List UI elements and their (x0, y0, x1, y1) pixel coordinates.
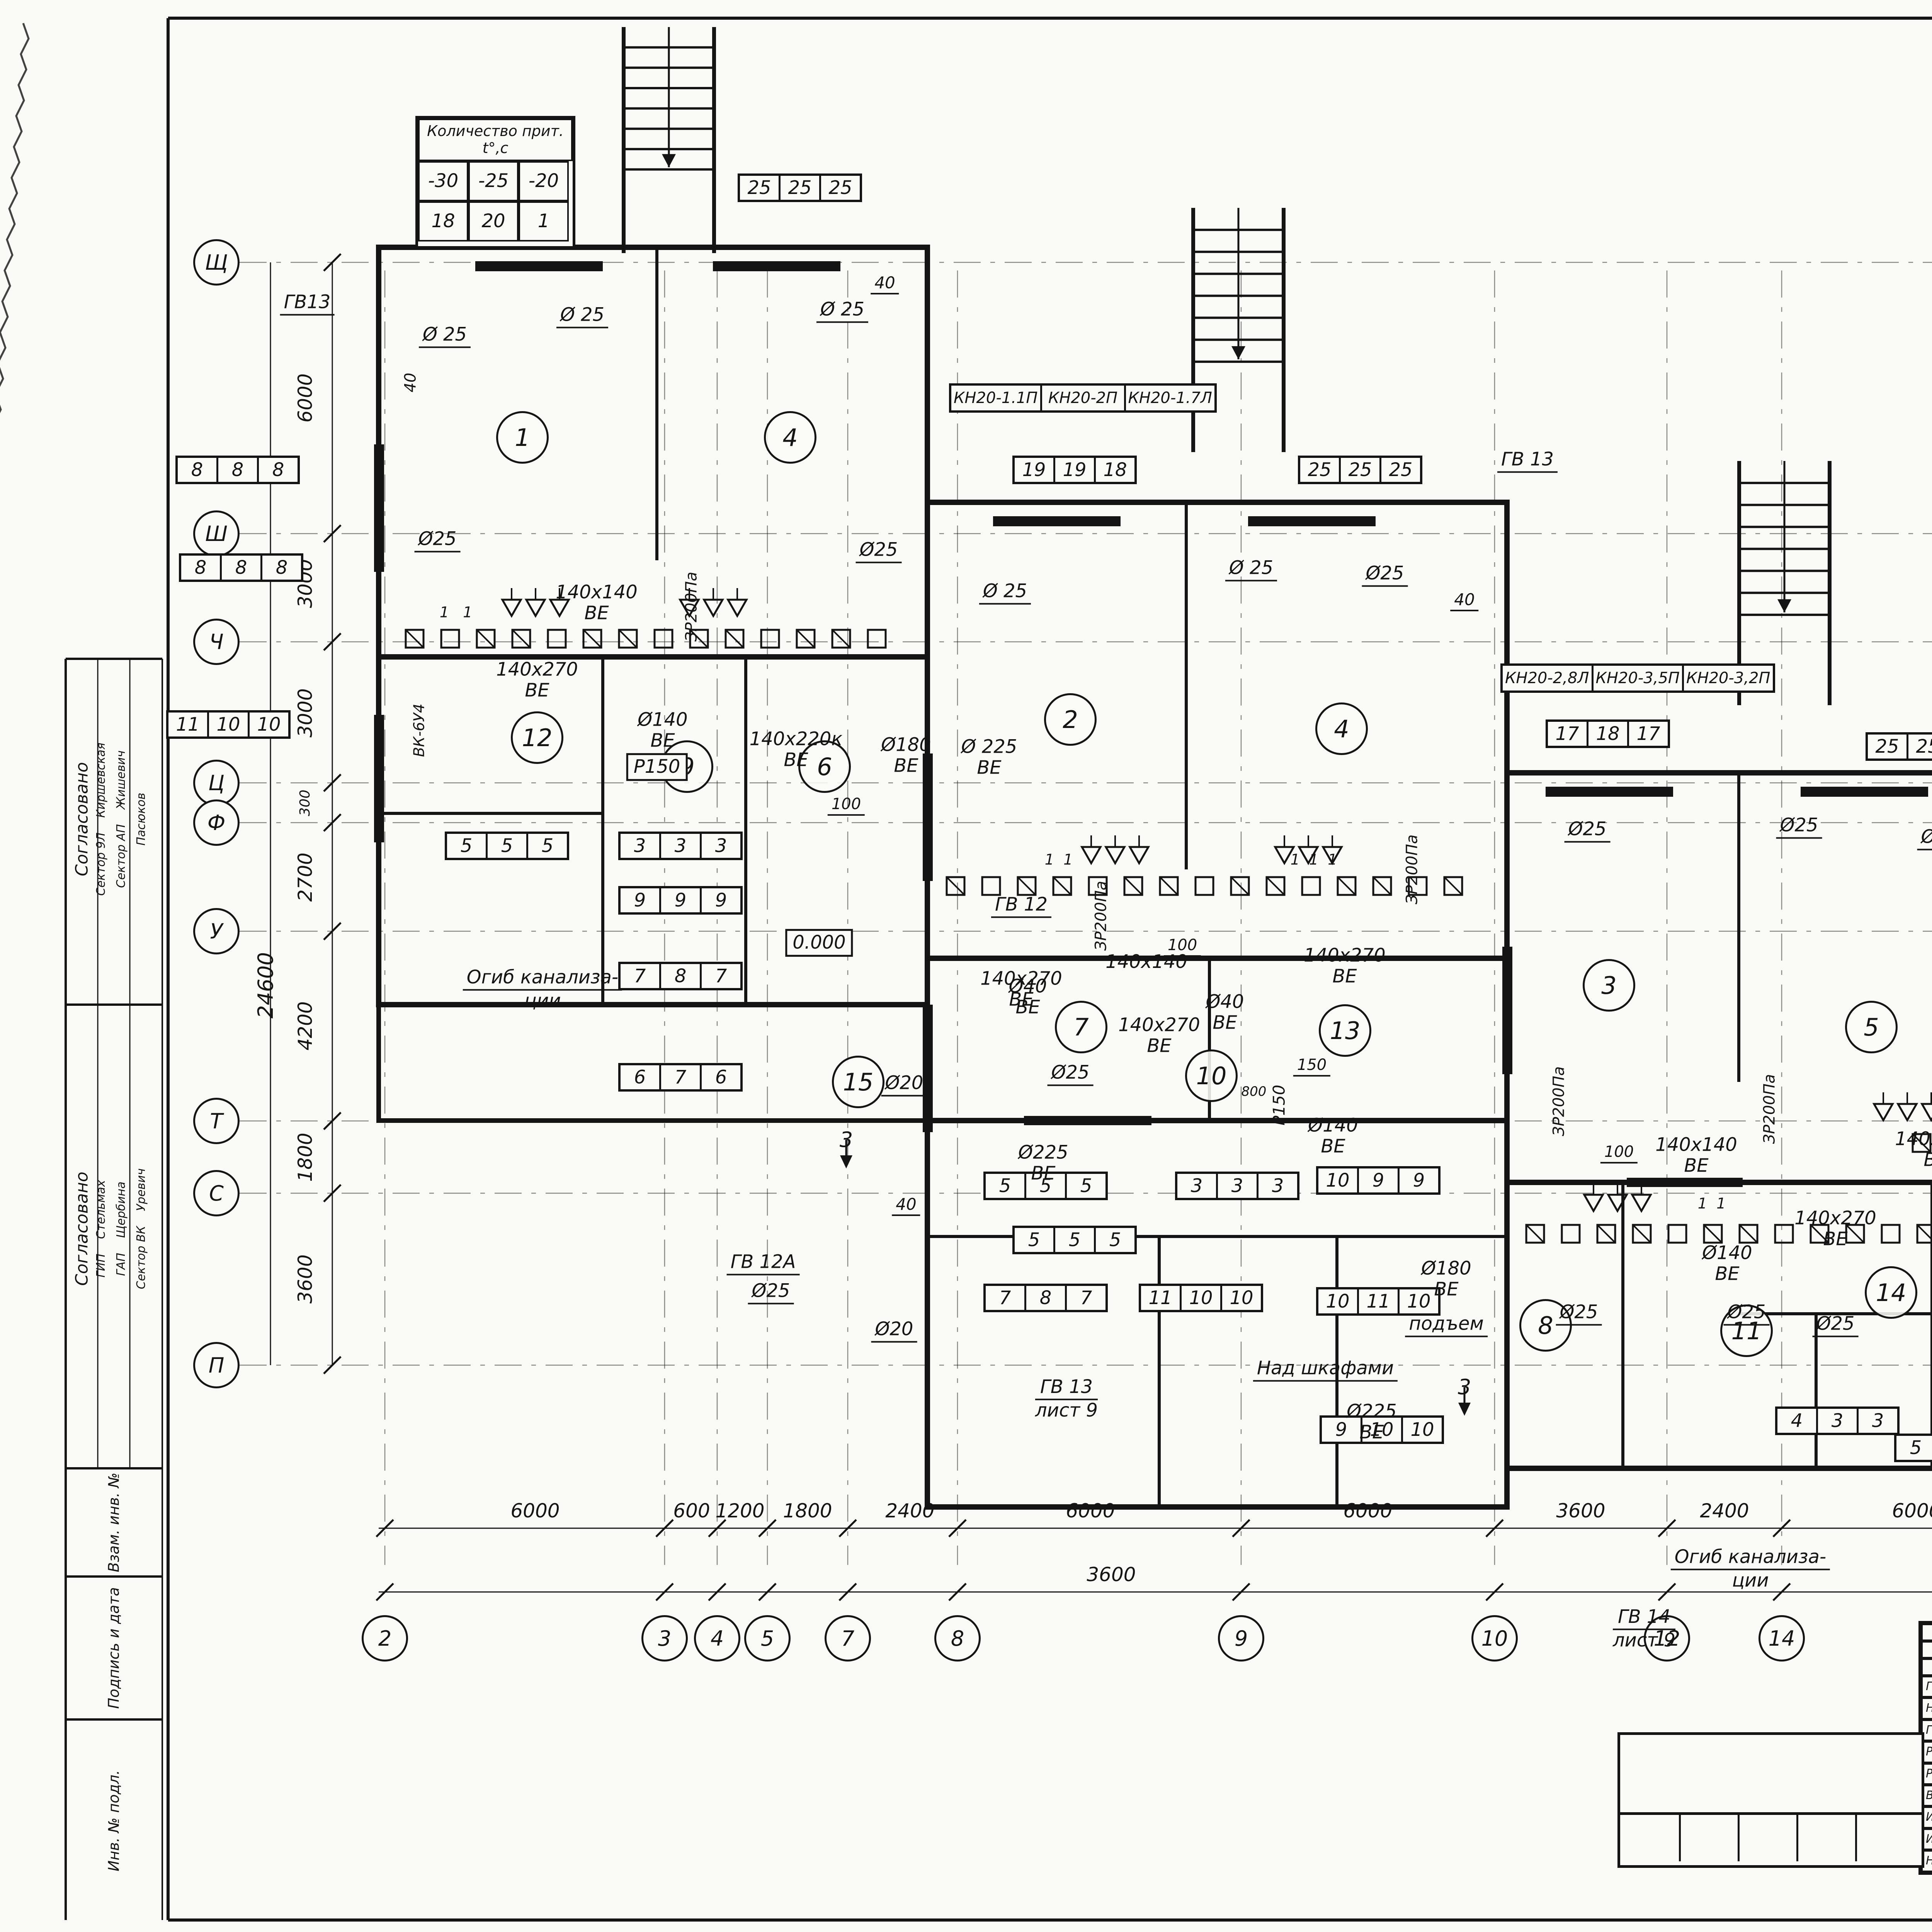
axis-bubble-left: Ш (193, 510, 240, 557)
pipe-label-line: Ø 25 (816, 299, 868, 323)
louver-count-cell: 25 (1341, 458, 1381, 482)
louver-count-cell: 7 (661, 1065, 702, 1089)
intake-table: Количество прит. t°,с-30-25-2018201 (415, 116, 575, 249)
louver-count-cell: 10 (1403, 1418, 1442, 1442)
axis-bubble-bottom: 4 (694, 1615, 740, 1662)
louver-count-cell: 10 (1222, 1286, 1261, 1310)
intake-table-cell: 1 (519, 201, 569, 241)
pipe-label-line: ВЕ (556, 603, 638, 624)
pipe-label-line: Ø20 (881, 1073, 927, 1097)
approved-stamp-row: Сектор 9Л Киршевская (95, 743, 108, 896)
louver-count-box: 676 (618, 1063, 743, 1092)
room-number-bubble: 13 (1319, 1004, 1371, 1057)
pipe-label: 140х270ВЕ (1895, 1129, 1932, 1170)
axis-bubble-bottom: 5 (744, 1615, 791, 1662)
pipe-label-line: Ø 25 (1225, 558, 1277, 582)
pipe-label-line: ГВ 12 (991, 895, 1051, 918)
axis-bubble-bottom: 9 (1218, 1615, 1264, 1662)
pipe-label: ГВ13 (280, 292, 335, 316)
room-number-bubble: 4 (1315, 702, 1368, 755)
pipe-label-line: ЗР200Па (1761, 1074, 1779, 1144)
pipe-label-line: ВЕ (1347, 1422, 1396, 1443)
pipe-label-line: 140х270 (1118, 1015, 1200, 1036)
louver-count-cell: 7 (702, 964, 740, 988)
room-number-bubble: 5 (1845, 1001, 1898, 1053)
pipe-label: ВК-6У4 (411, 704, 428, 757)
dimension-label: 600 (673, 1500, 710, 1522)
signature-empty-row (1921, 1641, 1932, 1658)
pipe-label-line: ВЕ (1206, 1012, 1244, 1033)
pipe-label: 1 1 (1698, 1196, 1726, 1212)
pipe-label: ЗР200Па (1404, 835, 1421, 905)
pipe-label: 800 (1242, 1084, 1267, 1099)
louver-count-box: 191918 (1012, 456, 1137, 484)
dimension-label: 3600 (1087, 1564, 1136, 1585)
pipe-label-line: 150 (1293, 1056, 1330, 1077)
pipe-label: 1 1 (1045, 852, 1073, 868)
pipe-label: 0.000 (785, 929, 853, 957)
pipe-label: Ø25 (1362, 563, 1408, 587)
pipe-label: 150 (1293, 1056, 1330, 1077)
pipe-label-line: ГВ13 (280, 292, 335, 316)
pipe-label: Огиб канализа-ции (463, 967, 622, 1012)
pipe-label: Ø25 (1048, 1063, 1094, 1086)
pipe-label-line: ВЕ (881, 755, 931, 776)
louver-count-box: 111010 (166, 710, 291, 739)
louver-count-cell: 3 (702, 834, 740, 858)
pipe-label-line: 800 (1242, 1084, 1267, 1099)
louver-count-box: 433 (1775, 1406, 1900, 1435)
louver-count-box: 1099 (1316, 1166, 1440, 1195)
pipe-label-line: Огиб канализа- (463, 967, 622, 991)
pipe-label-line: Ø25 (1556, 1302, 1602, 1326)
pipe-label-line: Ø40 (1206, 992, 1244, 1012)
axis-bubble-bottom: 2 (362, 1615, 408, 1662)
pipe-label-line: Ø140 (638, 709, 687, 730)
louver-count-cell: 8 (222, 556, 262, 580)
pipe-label: 140х270ВЕ (1304, 945, 1386, 987)
louver-count-cell: 8 (661, 964, 702, 988)
dimension-label: 2700 (294, 852, 316, 901)
pipe-label: ГВ 12А (727, 1252, 800, 1276)
dimension-label: 4200 (294, 1001, 316, 1050)
louver-count-box: 787 (618, 962, 743, 990)
axis-bubble-bottom: 10 (1471, 1615, 1518, 1662)
pipe-label-line: Ø 25 (419, 325, 471, 348)
pipe-label-line: Ø 25 (556, 305, 608, 328)
approved-stamp-row: ГИП Стельмах (95, 1180, 108, 1277)
pipe-label: Ø25 (1556, 1302, 1602, 1326)
louver-count-cell: 3 (1818, 1409, 1859, 1433)
pipe-label: ЗР200Па (683, 572, 701, 642)
pipe-label: 100 (1600, 1143, 1638, 1163)
intake-table-cell: -30 (418, 161, 468, 201)
axis-bubble-left: Ч (193, 619, 240, 665)
pipe-label: Ø225ВЕ (1018, 1142, 1068, 1184)
pipe-label-line: подъем (1405, 1314, 1488, 1337)
louver-count-cell: 17 (1629, 722, 1668, 746)
louver-count-cell: 6 (621, 1065, 661, 1089)
pipe-label-line: ВЕ (1421, 1279, 1471, 1300)
room-number-bubble: 1 (496, 411, 549, 464)
pipe-label-line: 140х220к (750, 729, 843, 750)
pipe-label: Р150 (1270, 1085, 1288, 1126)
louver-count-cell: 3 (1218, 1174, 1259, 1198)
pipe-label: Ø40ВЕ (1009, 976, 1047, 1018)
louver-count-cell: 25 (1908, 735, 1932, 759)
pipe-label-line: ВК-6У4 (411, 704, 428, 757)
pipe-label-line: Ø140 (1308, 1115, 1358, 1136)
pipe-label: 3 (1458, 1376, 1471, 1399)
pipe-label-line: ЗР200Па (683, 572, 701, 642)
pipe-label: 40 (402, 373, 420, 393)
room-number-bubble: 14 (1865, 1266, 1917, 1319)
pipe-label: Ø25 (415, 529, 461, 553)
pipe-label-line: Ø25 (856, 540, 902, 563)
pipe-label-line: Ø25 (1776, 815, 1822, 839)
pipe-label: 1 1 1 (1291, 852, 1337, 868)
pipe-label: 140х140ВЕ (1655, 1134, 1737, 1176)
pipe-label-line: ЗР200Па (1404, 835, 1421, 905)
pipe-label-line: Над шкафами (1253, 1358, 1398, 1382)
binding-subgrid-divider (1738, 1815, 1740, 1861)
louver-count-cell: 8 (218, 458, 259, 482)
room-number-bubble: 3 (1583, 959, 1635, 1012)
pipe-label-line: Р150 (634, 757, 680, 777)
louver-count-cell: 25 (1868, 735, 1908, 759)
pipe-label-line: ВЕ (1655, 1155, 1737, 1176)
axis-bubble-left: Ц (193, 760, 240, 806)
louver-count-cell: 8 (262, 556, 301, 580)
pipe-label-line: 40 (892, 1195, 920, 1216)
pipe-label: ЗР200Па (1761, 1074, 1779, 1144)
pipe-label-line: лист 9 (1035, 1400, 1098, 1421)
pipe-label-line: Ø25 (1917, 827, 1932, 850)
pipe-label-line: Ø25 (748, 1281, 794, 1304)
pipe-label: 140х220кВЕ (750, 729, 843, 770)
pipe-label: ЗР200Па (1093, 881, 1110, 951)
louver-count-cell: 25 (1381, 458, 1420, 482)
pipe-label-line: ГВ 13 (1497, 449, 1558, 473)
louver-count-cell: 25 (821, 176, 860, 200)
pipe-label-line: 1 1 (1698, 1196, 1726, 1212)
pipe-label-line: Ø25 (1565, 819, 1611, 843)
pipe-label-line: Ø 225 (961, 736, 1017, 757)
room-number-bubble: 2 (1044, 693, 1097, 746)
louver-count-cell: 5 (1055, 1228, 1096, 1252)
duct-unit-cell: КН20-3,5П (1594, 666, 1684, 690)
louver-count-box: 111010 (1139, 1284, 1263, 1312)
pipe-label: 140х270ВЕ (1794, 1208, 1876, 1250)
room-number-bubble: 10 (1185, 1049, 1238, 1102)
pipe-label-line: 140х270 (1304, 945, 1386, 966)
pipe-label-line: 140х270 (1895, 1129, 1932, 1150)
pipe-label-line: Ø40 (1009, 976, 1047, 997)
duct-unit-cell: КН20-2,8Л (1503, 666, 1594, 690)
pipe-label: Ø140ВЕ (1308, 1115, 1358, 1157)
pipe-label-line: 140х140 (1655, 1134, 1737, 1155)
pipe-label-line: ВЕ (1308, 1136, 1358, 1157)
louver-count-cell: 10 (1182, 1286, 1222, 1310)
blueprint-sheet: 9 Экспликация помещений Разрез 3-3 см. л… (0, 0, 1932, 1932)
louver-count-box: 555 (1012, 1226, 1137, 1254)
louver-count-cell: 3 (1859, 1409, 1897, 1433)
intake-table-title: Количество прит. t°,с (418, 119, 573, 161)
louver-count-box: 555 (445, 832, 569, 860)
dimension-label: 6000 (510, 1500, 560, 1522)
pipe-label-line: ВЕ (1895, 1150, 1932, 1170)
binding-subgrid-divider (1855, 1815, 1857, 1861)
pipe-label-line: ВЕ (961, 757, 1017, 778)
duct-unit-cell: КН20-2П (1042, 386, 1126, 410)
duct-unit-box: КН20-2,8ЛКН20-3,5ПКН20-3,2П (1500, 663, 1775, 693)
axis-bubble-left: Т (193, 1098, 240, 1144)
pipe-label-line: Ø20 (871, 1319, 917, 1343)
axis-bubble-left: С (193, 1170, 240, 1216)
room-number-bubble: 4 (764, 411, 816, 464)
dimension-label: 1800 (294, 1133, 316, 1182)
louver-count-cell: 9 (621, 888, 661, 912)
louver-count-cell: 3 (1177, 1174, 1218, 1198)
dimension-label: 6000 (294, 373, 316, 422)
pipe-label-line: ГВ 12А (727, 1252, 800, 1276)
louver-count-cell: 5 (1067, 1174, 1105, 1198)
louver-count-cell: 8 (181, 556, 222, 580)
louver-count-box: 888 (179, 553, 303, 582)
dimension-label: 6000 (1892, 1500, 1932, 1522)
duct-unit-cell: КН20-1.7Л (1126, 386, 1215, 410)
pipe-label: Ø25 (1724, 1302, 1770, 1326)
pipe-label-line: ВЕ (1702, 1264, 1752, 1284)
louver-count-box: 787 (983, 1284, 1108, 1312)
pipe-label-line: 1 1 (440, 604, 473, 621)
pipe-label: 40 (871, 274, 899, 294)
binding-subgrid (1617, 1812, 1924, 1868)
pipe-label-line: Ø225 (1347, 1401, 1396, 1422)
louver-count-box: 333 (1175, 1172, 1299, 1200)
louver-count-cell: 9 (702, 888, 740, 912)
axis-bubble-left: У (193, 908, 240, 954)
pipe-label: Ø25 (1776, 815, 1822, 839)
louver-count-cell: 10 (250, 713, 288, 736)
louver-count-box: 252525 (1866, 732, 1932, 761)
pipe-label-line: Огиб канализа- (1671, 1547, 1830, 1570)
louver-count-cell: 25 (740, 176, 781, 200)
louver-count-cell: 3 (621, 834, 661, 858)
pipe-label: 100 (1164, 937, 1201, 957)
louver-count-cell: 7 (621, 964, 661, 988)
pipe-label-line: ВЕ (1794, 1229, 1876, 1250)
signature-role: Нач.СТО (1921, 1697, 1932, 1719)
pipe-label-line: 40 (402, 373, 420, 393)
louver-count-cell: 7 (1067, 1286, 1105, 1310)
dimension-overall-label: 24600 (254, 952, 277, 1019)
pipe-label-line: ЗР200Па (1093, 881, 1110, 951)
pipe-label-line: 3 (840, 1128, 853, 1151)
louver-count-cell: 10 (209, 713, 250, 736)
dimension-label: 3600 (294, 1254, 316, 1303)
pipe-label: Ø 25 (979, 581, 1031, 605)
louver-count-cell: 5 (528, 834, 567, 858)
approved-stamp-row: Сектор ВК Уревич (135, 1168, 148, 1289)
louver-count-box: 555 (1894, 1434, 1932, 1462)
pipe-label-line: ВЕ (1118, 1036, 1200, 1056)
pipe-label: подъем (1405, 1314, 1488, 1337)
pipe-label: Ø140ВЕ (638, 709, 687, 751)
pipe-label: Ø 25 (816, 299, 868, 323)
pipe-label: Ø25 (856, 540, 902, 563)
pipe-label-line: ВЕ (1009, 997, 1047, 1018)
axis-bubble-bottom: 3 (641, 1615, 688, 1662)
duct-unit-box: КН20-1.1ПКН20-2ПКН20-1.7Л (949, 383, 1217, 413)
pipe-label-line: 140х270 (496, 659, 578, 680)
pipe-label: Ø20 (871, 1319, 917, 1343)
louver-count-cell: 5 (488, 834, 528, 858)
pipe-label: Ø25 (1917, 827, 1932, 850)
louver-count-cell: 17 (1548, 722, 1588, 746)
binding-subgrid-divider (1796, 1815, 1798, 1861)
pipe-label: Ø25 (748, 1281, 794, 1304)
pipe-label: 140х270ВЕ (1118, 1015, 1200, 1056)
louver-count-cell: 8 (1026, 1286, 1067, 1310)
pipe-label: Ø 25 (556, 305, 608, 328)
binding-subgrid-divider (1679, 1815, 1681, 1861)
pipe-label-line: ВЕ (638, 730, 687, 751)
binding-box (1617, 1732, 1924, 1815)
pipe-label: 3 (840, 1128, 853, 1151)
louver-count-cell: 25 (1300, 458, 1341, 482)
intake-table-cell: -20 (519, 161, 569, 201)
pipe-label-line: Р150 (1270, 1085, 1288, 1126)
pipe-label: ГВ 13лист 9 (1035, 1377, 1098, 1421)
louver-count-cell: 25 (781, 176, 821, 200)
pipe-label-line: 100 (1164, 937, 1201, 957)
louver-count-box: 171817 (1546, 719, 1670, 748)
duct-unit-cell: КН20-1.1П (951, 386, 1042, 410)
intake-table-cell: -25 (468, 161, 519, 201)
pipe-label: 100 (828, 796, 865, 816)
pipe-label-line: Ø25 (415, 529, 461, 553)
louver-count-box: 333 (618, 832, 743, 860)
pipe-label: Ø 25 (1225, 558, 1277, 582)
axis-bubble-left: Ф (193, 799, 240, 846)
pipe-label: ГВ 14лист 9 (1613, 1607, 1675, 1651)
pipe-label-line: Ø25 (1813, 1314, 1859, 1337)
pipe-label: ЗР200Па (1551, 1066, 1568, 1136)
stamp-field-label: Инв. № подл. (106, 1770, 122, 1871)
louver-count-cell: 11 (1359, 1289, 1400, 1313)
louver-count-cell: 10 (1318, 1289, 1359, 1313)
axis-bubble-left: П (193, 1342, 240, 1388)
dimension-label: 300 (298, 790, 313, 816)
dimension-label: 3000 (294, 688, 316, 737)
pipe-label-line: Ø25 (1724, 1302, 1770, 1326)
pipe-label-line: Ø25 (1048, 1063, 1094, 1086)
pipe-label-line: ции (1671, 1570, 1830, 1591)
approved-stamp-row: Пасюков (135, 793, 148, 846)
louver-count-cell: 11 (1141, 1286, 1182, 1310)
axis-bubble-left: Щ (193, 239, 240, 286)
intake-table-cell: 18 (418, 201, 468, 241)
louver-count-box: 252525 (738, 173, 862, 202)
approved-stamp-label: Согласовано (72, 762, 91, 876)
room-number-bubble: 12 (511, 711, 563, 764)
pipe-label: 40 (1450, 590, 1478, 611)
dimension-label: 1200 (715, 1500, 764, 1522)
pipe-label-line: ГВ 14 (1613, 1607, 1675, 1630)
signature-empty-row (1921, 1658, 1932, 1676)
louver-count-cell: 18 (1588, 722, 1629, 746)
pipe-label-line: 100 (1600, 1143, 1638, 1163)
louver-count-cell: 19 (1015, 458, 1055, 482)
approved-stamp-label: Согласовано (72, 1172, 91, 1286)
louver-count-box: 999 (618, 886, 743, 915)
pipe-label: Ø180ВЕ (881, 735, 931, 776)
pipe-label-line: ВЕ (496, 680, 578, 701)
pipe-label-line: Ø180 (1421, 1258, 1471, 1279)
pipe-label-line: лист 9 (1613, 1630, 1675, 1651)
pipe-label: Ø 25 (419, 325, 471, 348)
pipe-label-line: Ø 25 (979, 581, 1031, 605)
pipe-label-line: ции (463, 991, 622, 1012)
pipe-label-line: Ø25 (1362, 563, 1408, 587)
pipe-label-line: Ø180 (881, 735, 931, 755)
louver-count-cell: 5 (1896, 1436, 1932, 1460)
pipe-label-line: 140х270 (1794, 1208, 1876, 1229)
pipe-label-line: 40 (871, 274, 899, 294)
louver-count-cell: 9 (1359, 1168, 1400, 1192)
approved-stamp-row: ГАП Щербина (115, 1182, 128, 1276)
pipe-label-line: ГВ 13 (1035, 1377, 1098, 1400)
louver-count-cell: 5 (1015, 1228, 1055, 1252)
pipe-label: Над шкафами (1253, 1358, 1398, 1382)
intake-table-cell: 20 (468, 201, 519, 241)
pipe-label: Ø25 (1813, 1314, 1859, 1337)
signature-role: Гл.сант. (1921, 1676, 1932, 1697)
louver-count-box: 888 (175, 456, 300, 484)
pipe-label: Ø20 (881, 1073, 927, 1097)
louver-count-cell: 11 (168, 713, 209, 736)
axis-bubble-bottom: 8 (934, 1615, 981, 1662)
louver-count-cell: 10 (1318, 1168, 1359, 1192)
pipe-label-line: ЗР200Па (1551, 1066, 1568, 1136)
axis-bubble-bottom: 14 (1759, 1615, 1805, 1662)
pipe-label-line: 1 1 1 (1291, 852, 1337, 868)
pipe-label-line: ВЕ (1018, 1163, 1068, 1184)
pipe-label: ГВ 12 (991, 895, 1051, 918)
pipe-label: 40 (892, 1195, 920, 1216)
louver-count-cell: 18 (1096, 458, 1134, 482)
louver-count-cell: 19 (1055, 458, 1096, 482)
pipe-label: Ø 225ВЕ (961, 736, 1017, 778)
pipe-label: Ø140ВЕ (1702, 1243, 1752, 1284)
louver-count-cell: 5 (447, 834, 488, 858)
signature-empty-row (1921, 1624, 1932, 1641)
pipe-label-line: 100 (828, 796, 865, 816)
room-number-bubble: 15 (832, 1056, 884, 1108)
pipe-label-line: ВЕ (750, 750, 843, 770)
pipe-label: 140х140ВЕ (556, 582, 638, 624)
louver-count-cell: 8 (178, 458, 218, 482)
duct-unit-cell: КН20-3,2П (1684, 666, 1773, 690)
louver-count-cell: 4 (1777, 1409, 1818, 1433)
louver-count-box: 252525 (1298, 456, 1422, 484)
pipe-label: ГВ 13 (1497, 449, 1558, 473)
dimension-label: 2400 (885, 1500, 934, 1522)
dimension-label: 6000 (1343, 1500, 1392, 1522)
stamp-field-label: Подпись и дата (106, 1587, 122, 1709)
pipe-label-line: Ø225 (1018, 1142, 1068, 1163)
